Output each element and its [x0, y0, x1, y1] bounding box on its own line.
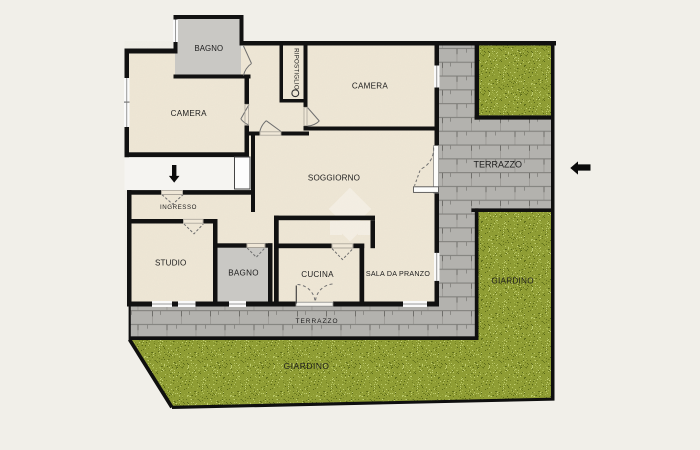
svg-text:STUDIO: STUDIO — [155, 259, 186, 268]
svg-text:BAGNO: BAGNO — [228, 269, 258, 278]
svg-text:TERRAZZO: TERRAZZO — [474, 160, 523, 170]
svg-text:CAMERA: CAMERA — [352, 82, 388, 91]
svg-text:GIARDINO: GIARDINO — [491, 276, 534, 285]
svg-text:CUCINA: CUCINA — [301, 270, 334, 279]
svg-text:CAMERA: CAMERA — [171, 109, 207, 118]
svg-text:INGRESSO: INGRESSO — [160, 204, 197, 211]
svg-text:GIARDINO: GIARDINO — [284, 361, 330, 371]
svg-text:BAGNO: BAGNO — [194, 44, 223, 53]
svg-text:SALA DA PRANZO: SALA DA PRANZO — [366, 270, 430, 278]
svg-text:RIPOSTIGLIO: RIPOSTIGLIO — [293, 48, 300, 90]
svg-text:TERRAZZO: TERRAZZO — [295, 318, 338, 325]
svg-text:SOGGIORNO: SOGGIORNO — [308, 174, 360, 183]
